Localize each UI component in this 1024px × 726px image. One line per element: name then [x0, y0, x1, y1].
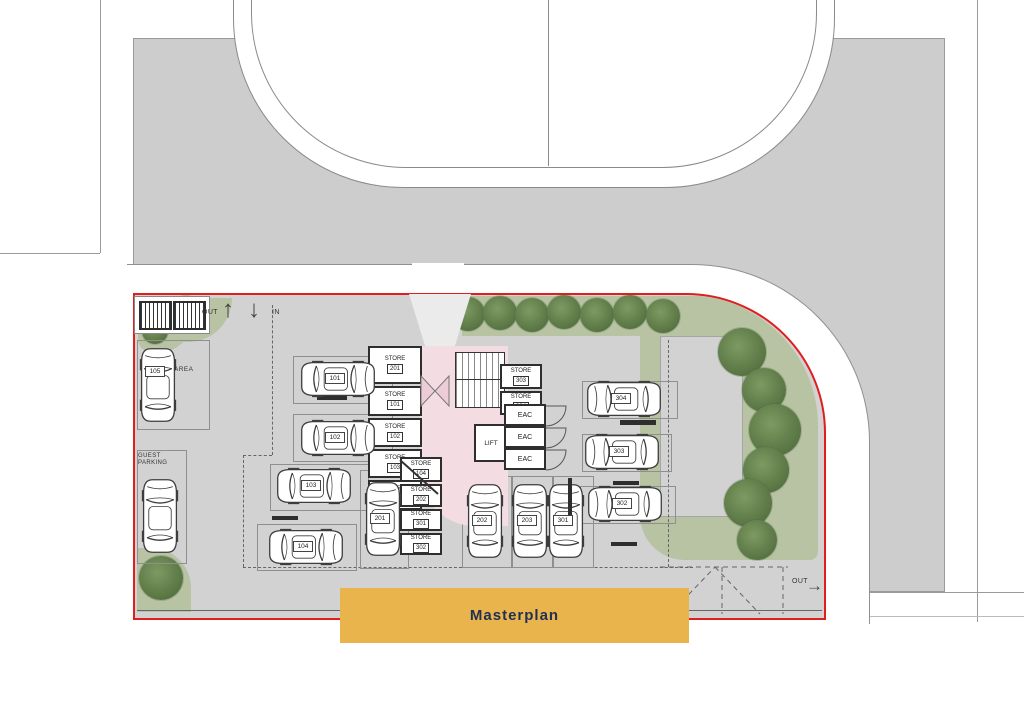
dashed-aisle-line: [243, 455, 272, 456]
tree-icon: [580, 298, 614, 332]
dashed-aisle-line: [272, 305, 273, 455]
eac-room: EAC: [504, 426, 546, 448]
store-unit: STORE 302: [400, 533, 442, 555]
store-label: STORE: [511, 368, 532, 375]
plot-divider-line: [548, 0, 549, 166]
store-label: STORE: [385, 392, 406, 399]
masterplan-banner: Masterplan: [340, 588, 689, 643]
store-unit: STORE 301: [400, 509, 442, 531]
store-label: STORE: [385, 424, 406, 431]
store-number: 202: [413, 495, 429, 505]
masterplan-title: Masterplan: [470, 607, 559, 624]
parking-space-number: 303: [609, 446, 629, 457]
tree-icon: [483, 296, 517, 330]
tree-icon: [646, 299, 680, 333]
entry-in-label: IN: [272, 309, 280, 316]
store-label: STORE: [411, 511, 432, 518]
parking-space-number: 104: [293, 541, 313, 552]
store-number: 201: [387, 364, 403, 374]
tree-icon: [547, 295, 581, 329]
store-label: STORE: [385, 356, 406, 363]
store-label: STORE: [511, 394, 532, 401]
car-icon: [139, 346, 177, 424]
masterplan-drawing: STORE 201 STORE 101 STORE 102 STORE 103 …: [0, 0, 1024, 726]
eac-label: EAC: [518, 456, 532, 463]
staircase: [455, 352, 505, 408]
eac-label: EAC: [518, 434, 532, 441]
wheel-stop: [611, 542, 637, 546]
driveway-crossing: [412, 263, 464, 296]
arrow-up-icon: ↑: [222, 298, 234, 322]
parking-space-number: 103: [301, 480, 321, 491]
parking-space-number: 102: [325, 432, 345, 443]
parking-space-number: 304: [611, 393, 631, 404]
store-number: 301: [413, 519, 429, 529]
bike-rack-icon: [139, 301, 172, 330]
store-unit: STORE 104: [400, 457, 442, 482]
area-label: AREA: [174, 366, 193, 373]
eac-room: EAC: [504, 404, 546, 426]
parking-space-number: 203: [517, 515, 537, 526]
wheel-stop: [272, 516, 298, 520]
wheel-stop: [620, 420, 656, 425]
opposite-plot-inner: [251, 0, 817, 168]
store-unit: STORE 303: [500, 364, 542, 389]
parking-space-number: 201: [370, 513, 390, 524]
lift: LIFT: [474, 424, 508, 462]
store-number: 303: [513, 376, 529, 386]
tree-icon: [613, 295, 647, 329]
store-unit: STORE 202: [400, 484, 442, 507]
dashed-aisle-line: [243, 455, 244, 567]
store-number: 104: [413, 469, 429, 479]
pavement-edge-line: [977, 0, 978, 622]
arrow-down-icon: ↓: [248, 298, 260, 322]
car-icon: [141, 477, 179, 555]
plot-boundary-line: [100, 0, 101, 253]
store-number: 302: [413, 543, 429, 553]
stair-landing-line: [456, 379, 504, 380]
arrow-right-icon: →: [806, 577, 823, 594]
plot-boundary-line: [0, 253, 100, 254]
guest-parking-label: GUEST PARKING: [138, 453, 184, 467]
eac-label: EAC: [518, 412, 532, 419]
tree-icon: [515, 298, 549, 332]
parking-space-number: 301: [553, 515, 573, 526]
kerb-line: [870, 592, 1024, 593]
eac-room: EAC: [504, 448, 546, 470]
parking-space-number: 302: [612, 498, 632, 509]
store-label: STORE: [411, 461, 432, 468]
parking-space-number: 202: [472, 515, 492, 526]
store-number: 101: [387, 400, 403, 410]
store-number: 102: [387, 432, 403, 442]
parking-space-number: 105: [145, 366, 165, 377]
parking-space-number: 101: [325, 373, 345, 384]
store-label: STORE: [411, 487, 432, 494]
lift-label: LIFT: [484, 440, 497, 447]
store-label: STORE: [411, 535, 432, 542]
entry-out-label: OUT: [202, 309, 218, 316]
